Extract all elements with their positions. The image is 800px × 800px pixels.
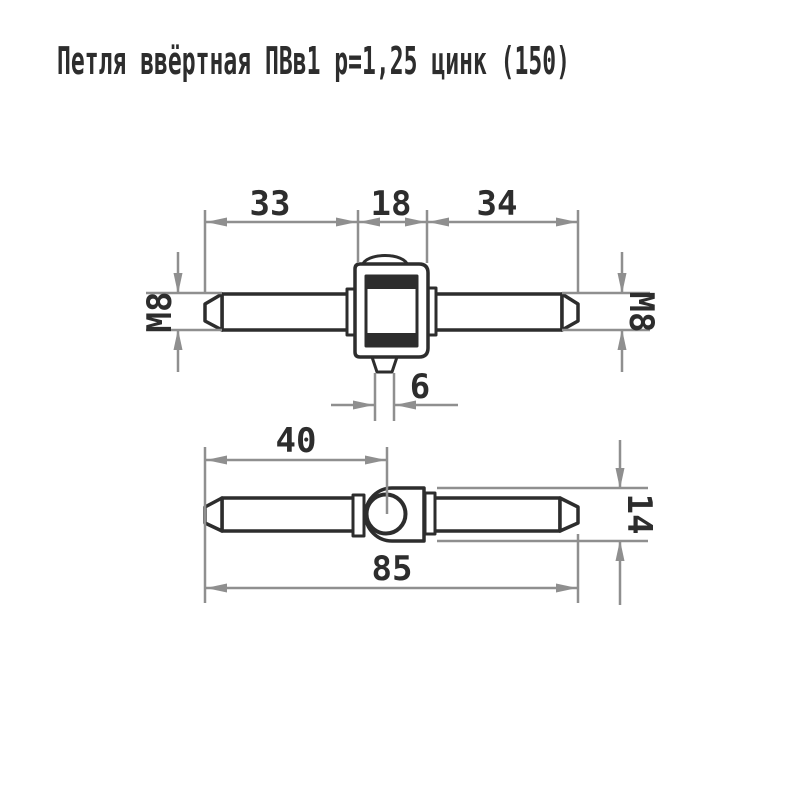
arrowhead xyxy=(365,456,386,465)
side-view-left-pin xyxy=(222,498,355,531)
top-view-inner-top-band xyxy=(366,276,417,289)
arrowhead xyxy=(616,540,625,561)
top-view-right-pin xyxy=(428,294,562,330)
side-view-right-pin-tip xyxy=(560,498,578,531)
side-view-left-flange xyxy=(353,495,364,536)
arrowhead xyxy=(616,468,625,489)
arrowhead xyxy=(336,218,357,227)
arrowhead xyxy=(556,584,577,593)
side-view-part xyxy=(205,488,578,541)
dim-label-m8-right: М8 xyxy=(621,292,661,333)
dim-label-34: 34 xyxy=(477,184,518,224)
dim-label-33: 33 xyxy=(250,184,291,224)
technical-drawing: Петля ввёртная ПВв1 p=1,25 цинк (150) xyxy=(0,0,800,800)
arrowhead xyxy=(206,456,227,465)
top-view-left-pin-tip xyxy=(205,294,222,330)
side-view-left-pin-tip xyxy=(205,498,222,531)
top-view-right-pin-tip xyxy=(562,294,578,330)
arrowhead xyxy=(428,218,449,227)
top-view-left-pin xyxy=(222,294,355,330)
side-view-right-pin xyxy=(434,498,560,531)
dim-label-40: 40 xyxy=(276,421,317,461)
dim-label-14: 14 xyxy=(619,494,659,535)
arrowhead xyxy=(206,584,227,593)
arrowhead xyxy=(206,218,227,227)
top-view-bottom-tab xyxy=(372,357,397,372)
drawing-title: Петля ввёртная ПВв1 p=1,25 цинк (150) xyxy=(57,39,570,83)
dim-label-6: 6 xyxy=(410,367,430,407)
arrowhead xyxy=(174,273,183,294)
arrowhead xyxy=(353,401,374,410)
dim-label-18: 18 xyxy=(371,184,412,224)
top-view-part xyxy=(205,256,578,373)
side-view-right-flange xyxy=(425,493,435,534)
dim-label-85: 85 xyxy=(372,549,413,589)
arrowhead xyxy=(556,218,577,227)
top-view-inner-bottom-band xyxy=(366,333,417,346)
drawing-canvas: Петля ввёртная ПВв1 p=1,25 цинк (150) xyxy=(0,0,800,800)
dim-label-m8-left: М8 xyxy=(140,292,180,333)
